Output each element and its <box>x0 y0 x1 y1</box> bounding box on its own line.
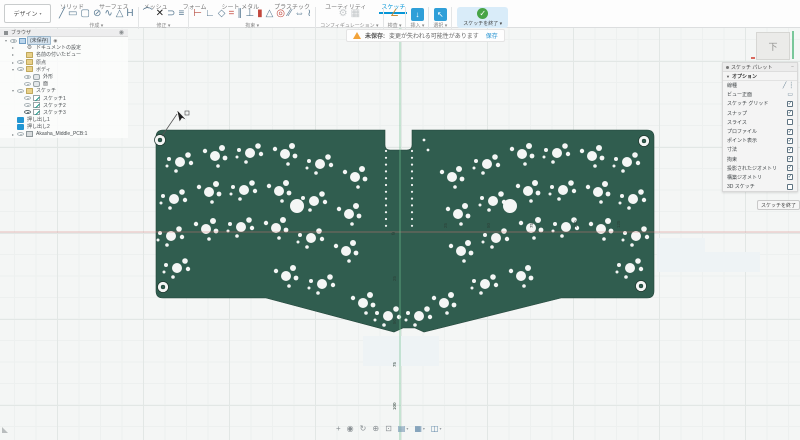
sketch-icon <box>33 102 40 108</box>
key-hole <box>490 245 494 249</box>
tree-item-label: 名前の付いたビュー <box>34 51 83 58</box>
offset-icon[interactable]: ≡ <box>178 7 184 21</box>
key-hole <box>166 165 169 168</box>
key-hole <box>175 157 185 167</box>
palette-row-ポイント表示: ポイント表示✓ <box>723 136 797 145</box>
key-hole <box>616 271 619 274</box>
key-hole <box>238 197 242 201</box>
key-hole <box>203 149 207 153</box>
key-hole <box>440 170 444 174</box>
key-hole <box>371 303 376 308</box>
body-icon <box>33 81 40 87</box>
via-hole <box>385 225 387 227</box>
palette-row-label: スナップ <box>727 110 787 117</box>
via-hole <box>411 184 413 186</box>
tree-item-label: スケッチ <box>34 87 58 94</box>
checkbox-スケッチ グリッド[interactable]: ✓ <box>787 101 793 107</box>
key-hole <box>446 207 450 211</box>
key-hole <box>341 246 351 256</box>
expand-arrow-icon[interactable]: ▾ <box>10 88 16 93</box>
via-hole <box>411 150 413 152</box>
key-hole <box>293 154 298 159</box>
via-hole <box>411 211 413 213</box>
key-hole <box>197 185 201 189</box>
save-link[interactable]: 保存 <box>486 31 498 40</box>
tree-row-外形[interactable]: 外形 <box>0 73 128 80</box>
key-hole <box>274 186 284 196</box>
key-hole <box>456 166 462 172</box>
key-hole <box>482 241 485 244</box>
collapse-icon[interactable]: − <box>791 64 794 70</box>
key-hole <box>529 276 534 281</box>
tree-item-label: ボディ <box>34 66 53 73</box>
key-hole <box>621 169 625 173</box>
tree-row-スケッチ2[interactable]: スケッチ2 <box>0 102 128 109</box>
key-hole <box>281 271 291 281</box>
group-label-挿入[interactable]: 挿入 ▾ <box>410 22 424 29</box>
grid-coordinate-label: 50 <box>486 222 491 228</box>
key-hole <box>529 199 533 203</box>
key-hole <box>273 147 277 151</box>
grid-coordinate-label: 50 <box>392 318 397 324</box>
gear-icon: ⚙ <box>26 45 33 51</box>
key-hole <box>161 194 165 198</box>
extrude-icon <box>17 124 24 130</box>
visibility-eye-icon[interactable] <box>17 60 24 64</box>
key-hole <box>448 292 454 298</box>
large-hole <box>503 199 517 213</box>
tree-row-ボディ[interactable]: ▾ボディ <box>0 66 128 73</box>
key-hole <box>480 279 490 289</box>
configure-icon[interactable]: ⚙ <box>339 7 348 21</box>
screw-hole-center <box>161 285 165 289</box>
construction-line-icon[interactable]: ╱ <box>783 82 787 89</box>
perpendicular-icon[interactable]: ⊥ <box>245 7 254 21</box>
group-label-コンフィギュレーション[interactable]: コンフィギュレーション ▾ <box>320 22 378 29</box>
key-hole <box>271 223 281 233</box>
palette-options-section[interactable]: ▼ オプション <box>723 72 797 81</box>
via-hole <box>411 218 413 220</box>
palette-row-スケッチ グリッド: スケッチ グリッド✓ <box>723 99 797 108</box>
key-hole <box>236 222 246 232</box>
look-at-icon[interactable]: ▭ <box>787 91 793 98</box>
key-hole <box>488 196 498 206</box>
key-hole <box>641 226 647 232</box>
key-hole <box>614 157 618 161</box>
finish-sketch-button[interactable]: スケッチを終了 <box>757 200 800 210</box>
via-hole <box>411 204 413 206</box>
tree-row-スケッチ[interactable]: ▾スケッチ <box>0 87 128 94</box>
viewcube-y-axis <box>792 31 794 59</box>
chevron-down-icon: ▾ <box>439 426 441 431</box>
key-hole <box>183 198 187 202</box>
curvature-icon[interactable]: ≀ <box>307 7 311 21</box>
via-hole <box>427 149 430 152</box>
tree-row-スケッチ1[interactable]: スケッチ1 <box>0 95 128 102</box>
key-hole <box>316 291 320 295</box>
palette-row-label: 構築ジオメトリ <box>727 174 787 181</box>
tree-row-押し出し2[interactable]: 押し出し2 <box>0 123 128 130</box>
tree-row-ドキュメントの設定[interactable]: ▸⚙ドキュメントの設定 <box>0 44 128 51</box>
display-settings-icon[interactable]: ▤▾ <box>398 424 409 433</box>
key-hole <box>620 194 624 198</box>
visibility-eye-icon[interactable] <box>24 103 31 107</box>
fusion360-window: デザイン ▾ ソリッドサーフェスメッシュフォームシート メタルプラスチックユーテ… <box>0 0 800 440</box>
key-hole <box>367 292 373 298</box>
panel-collapse-handle[interactable] <box>2 427 8 433</box>
key-hole <box>522 284 526 288</box>
measure-icon[interactable]: ∠ <box>390 7 399 21</box>
slot-icon[interactable]: ▢ <box>80 7 89 21</box>
key-hole <box>474 159 478 163</box>
visibility-eye-icon[interactable] <box>10 39 17 43</box>
key-hole <box>636 161 640 165</box>
rectangle-icon[interactable]: ▭ <box>68 7 77 21</box>
palette-title: スケッチ パレット <box>731 64 772 71</box>
key-hole <box>350 222 354 226</box>
key-hole <box>343 170 347 174</box>
grid-coordinate-label: 125 <box>616 220 621 228</box>
key-hole <box>253 189 257 193</box>
tree-row-スケッチ3[interactable]: スケッチ3 <box>0 109 128 116</box>
key-hole <box>549 193 552 196</box>
key-hole <box>246 217 252 223</box>
visibility-eye-icon[interactable] <box>24 75 31 79</box>
select-icon[interactable]: ↖ <box>434 8 447 21</box>
extend-icon[interactable]: ⊃ <box>167 7 175 21</box>
key-hole <box>466 214 471 219</box>
sketch-icon <box>33 109 40 115</box>
key-hole <box>523 186 533 196</box>
large-hole <box>290 199 304 213</box>
spline-icon[interactable]: ∿ <box>104 7 112 21</box>
key-hole <box>305 245 309 249</box>
trim-icon[interactable]: ✕ <box>156 7 164 21</box>
warning-prefix: 未保存: <box>365 31 385 40</box>
key-hole <box>586 185 590 189</box>
via-hole <box>385 211 387 213</box>
visibility-eye-icon[interactable] <box>17 67 24 71</box>
key-hole <box>587 151 597 161</box>
checkbox-拘束[interactable]: ✓ <box>787 156 793 162</box>
key-hole <box>496 163 500 167</box>
key-hole <box>558 185 568 195</box>
centerline-icon[interactable]: ┆ <box>789 82 793 89</box>
key-hole <box>639 267 643 271</box>
key-hole <box>473 167 476 170</box>
collinear-icon[interactable]: ∕∕ <box>288 7 291 21</box>
key-hole <box>530 154 535 159</box>
checkbox-3D スケッチ[interactable] <box>787 184 793 190</box>
palette-grip-icon <box>726 66 729 69</box>
browser-panel: ブラウザ ◉ ▾(未保存)◉▸⚙ドキュメントの設定▸名前の付いたビュー▸原点▾ボ… <box>0 29 128 138</box>
group-label-検査[interactable]: 検査 ▾ <box>388 22 402 29</box>
sketch-dimension-icon[interactable]: ⊢ <box>193 7 202 21</box>
palette-row-label: ビュー正面 <box>727 91 784 98</box>
palette-row-ビュー正面: ビュー正面▭ <box>723 90 797 99</box>
key-hole <box>171 275 175 279</box>
key-hole <box>526 143 532 149</box>
tree-row-(未保存)[interactable]: ▾(未保存)◉ <box>0 37 128 44</box>
origin-symbol[interactable]: ⌀ <box>391 231 395 237</box>
key-hole <box>316 228 322 234</box>
config-table-icon[interactable]: ▦ <box>351 7 360 21</box>
key-hole <box>382 323 386 327</box>
workspace-switcher[interactable]: デザイン ▾ <box>4 4 51 23</box>
key-hole <box>557 197 561 201</box>
key-hole <box>331 283 335 287</box>
key-hole <box>593 164 597 168</box>
key-hole <box>309 279 313 283</box>
equal-icon[interactable]: = <box>229 7 235 21</box>
text-icon[interactable]: H <box>126 7 133 21</box>
orbit-icon[interactable]: ↻ <box>360 424 367 433</box>
key-hole <box>230 193 233 196</box>
key-hole <box>264 221 268 225</box>
key-hole <box>353 203 359 209</box>
screw-hole-center <box>639 284 643 288</box>
body-icon <box>33 74 40 80</box>
tree-row-面[interactable]: 面 <box>0 80 128 87</box>
line-icon[interactable]: ╱ <box>59 7 65 21</box>
key-hole <box>309 196 319 206</box>
group-label-修正[interactable]: 修正 ▾ <box>157 22 171 29</box>
key-hole <box>364 311 368 315</box>
key-hole <box>210 151 220 161</box>
key-hole <box>482 159 492 169</box>
key-hole <box>228 222 232 226</box>
collapse-arrow-icon[interactable]: ▸ <box>10 52 16 57</box>
chevron-down-icon: ▼ <box>726 74 730 79</box>
options-label: オプション <box>732 73 757 80</box>
palette-row-スライス: スライス <box>723 118 797 127</box>
key-hole <box>632 152 638 158</box>
key-hole <box>163 271 166 274</box>
collapse-arrow-icon[interactable]: ▸ <box>10 132 16 137</box>
expand-arrow-icon[interactable]: ▾ <box>10 67 16 72</box>
pan-icon[interactable]: + <box>336 424 341 433</box>
insert-icon[interactable]: ↓ <box>411 8 424 21</box>
key-hole <box>189 161 193 165</box>
active-component-radio[interactable]: ◉ <box>53 38 57 44</box>
grid-coordinate-label: 75 <box>529 222 534 228</box>
key-hole <box>462 203 468 209</box>
key-hole <box>517 149 527 159</box>
via-hole <box>385 164 387 166</box>
key-hole <box>481 171 485 175</box>
via-hole <box>385 191 387 193</box>
checkbox-スライス[interactable] <box>787 119 793 125</box>
key-hole <box>236 156 239 159</box>
key-hole <box>551 160 555 164</box>
fit-icon[interactable]: ⊡ <box>385 424 392 433</box>
key-hole <box>344 209 354 219</box>
zoom-icon[interactable]: ⊕ <box>372 424 379 433</box>
key-hole <box>186 267 190 271</box>
key-hole <box>494 283 498 287</box>
palette-row-label: 寸法 <box>727 146 787 153</box>
look-at-icon[interactable]: ◉ <box>347 424 354 433</box>
key-hole <box>157 239 160 242</box>
tree-item-label: Akasha_Middle_PCB:1 <box>34 131 89 137</box>
key-hole <box>289 143 295 149</box>
parallel-icon[interactable]: ∥ <box>237 7 242 21</box>
key-hole <box>280 217 286 223</box>
palette-row-label: スケッチ グリッド <box>727 100 787 107</box>
checkbox-寸法[interactable]: ✓ <box>787 147 793 153</box>
key-hole <box>535 217 541 223</box>
key-hole <box>453 209 463 219</box>
key-hole <box>168 206 172 210</box>
key-hole <box>280 149 290 159</box>
tree-row-原点[interactable]: ▸原点 <box>0 59 128 66</box>
grid-coordinate-label: 25 <box>443 222 448 228</box>
group-label-選択[interactable]: 選択 ▾ <box>433 22 447 29</box>
key-hole <box>605 218 611 224</box>
palette-row-label: 投影されたジオメトリ <box>727 165 787 172</box>
key-hole <box>290 265 296 271</box>
key-hole <box>624 275 628 279</box>
key-hole <box>306 167 309 170</box>
key-hole <box>308 287 311 290</box>
key-hole <box>631 231 641 241</box>
polygon-icon[interactable]: △ <box>116 7 124 21</box>
key-hole <box>210 218 216 224</box>
key-hole <box>158 231 162 235</box>
key-hole <box>237 148 241 152</box>
concentric-icon[interactable]: ◎ <box>276 7 285 21</box>
key-hole <box>219 145 225 151</box>
visibility-eye-icon[interactable] <box>24 96 31 100</box>
circle-icon[interactable]: ⊘ <box>93 7 101 21</box>
horizontal-vertical-icon[interactable]: ∟ <box>205 7 215 21</box>
key-hole <box>286 162 290 166</box>
tree-row-押し出し1[interactable]: 押し出し1 <box>0 116 128 123</box>
via-hole <box>423 139 426 142</box>
toolbar-group-選択: ↖選択 ▾ <box>430 7 450 29</box>
key-hole <box>210 200 214 204</box>
key-hole <box>445 311 449 315</box>
extrude-icon <box>17 117 24 123</box>
key-hole <box>602 181 608 187</box>
key-hole <box>456 246 466 256</box>
palette-row-3D スケッチ: 3D スケッチ <box>723 182 797 191</box>
tree-row-名前の付いたビュー[interactable]: ▸名前の付いたビュー <box>0 51 128 58</box>
grid-coordinate-label: 25 <box>392 275 397 281</box>
pcb-board-outline[interactable] <box>156 130 654 332</box>
key-hole <box>245 148 255 158</box>
screw-hole-center <box>642 139 646 143</box>
key-hole <box>255 143 261 149</box>
key-hole <box>283 180 289 186</box>
chevron-down-icon: ▾ <box>406 426 408 431</box>
tree-item-label: 押し出し2 <box>25 123 52 130</box>
midpoint-icon[interactable]: △ <box>266 7 274 21</box>
key-hole <box>566 152 570 156</box>
palette-header[interactable]: スケッチ パレット − <box>723 63 797 72</box>
key-hole <box>307 159 311 163</box>
browser-header: ブラウザ ◉ <box>0 29 128 37</box>
key-hole <box>315 159 325 169</box>
tree-row-Akasha_Middle_PCB:1[interactable]: ▸Akasha_Middle_PCB:1 <box>0 130 128 137</box>
group-label-拘束[interactable]: 拘束 ▾ <box>245 22 259 29</box>
visibility-eye-icon[interactable] <box>24 110 31 114</box>
key-hole <box>645 235 649 239</box>
palette-row-label: プロファイル <box>727 128 787 135</box>
key-hole <box>432 296 436 300</box>
grid-snap-icon[interactable]: ▦▾ <box>414 424 425 433</box>
checkbox-構築ジオメトリ[interactable]: ✓ <box>787 174 793 180</box>
key-hole <box>319 191 325 197</box>
visibility-eye-icon[interactable] <box>17 89 24 93</box>
key-hole <box>469 251 474 256</box>
checkbox-プロファイル[interactable]: ✓ <box>787 129 793 135</box>
browser-gear-icon[interactable]: ◉ <box>119 29 124 36</box>
key-hole <box>414 311 424 321</box>
key-hole <box>294 276 299 281</box>
fillet-icon[interactable]: ⌒ <box>143 7 153 21</box>
highlight-region <box>363 336 439 366</box>
key-hole <box>483 233 487 237</box>
checkbox-ポイント表示[interactable]: ✓ <box>787 138 793 144</box>
key-hole <box>180 235 184 239</box>
key-hole <box>298 233 302 237</box>
collapse-arrow-icon[interactable]: ▸ <box>10 60 16 65</box>
checkbox-スナップ[interactable]: ✓ <box>787 110 793 116</box>
key-hole <box>374 319 377 322</box>
collapse-arrow-icon[interactable]: ▸ <box>10 45 16 50</box>
key-hole <box>350 172 360 182</box>
via-hole <box>385 150 387 152</box>
expand-arrow-icon[interactable]: ▾ <box>3 38 9 43</box>
group-label-作成[interactable]: 作成 ▾ <box>89 22 103 29</box>
key-hole <box>306 233 316 243</box>
key-hole <box>351 296 355 300</box>
group-divider <box>451 7 452 29</box>
viewports-icon[interactable]: ◫▾ <box>431 424 442 433</box>
highlight-region <box>657 238 705 272</box>
viewcube[interactable]: 下 <box>756 32 790 60</box>
sketch-icon <box>33 95 40 101</box>
fix-icon[interactable]: ▮ <box>257 7 263 21</box>
finish-sketch-chip[interactable]: ✓スケッチを終了 ▾ <box>457 7 508 28</box>
key-hole <box>532 180 538 186</box>
key-hole <box>347 259 351 263</box>
key-hole <box>553 222 557 226</box>
checkbox-投影されたジオメトリ[interactable]: ✓ <box>787 165 793 171</box>
tree-item-label: 原点 <box>34 59 48 66</box>
sketch-palette: スケッチ パレット − ▼ オプション 線種╱┆ビュー正面▭スケッチ グリッド✓… <box>722 62 798 192</box>
workspace-label: デザイン <box>13 9 37 18</box>
key-hole <box>405 319 408 322</box>
grid-coordinate-label: 100 <box>573 220 578 228</box>
key-hole <box>185 152 191 158</box>
visibility-eye-icon[interactable] <box>24 82 31 86</box>
visibility-eye-icon[interactable] <box>17 132 24 136</box>
unsaved-warning-bar: 未保存: 変更が失われる可能性があります 保存 <box>346 29 505 42</box>
screw-hole-center <box>158 138 162 142</box>
key-hole <box>606 192 611 197</box>
palette-row-投影されたジオメトリ: 投影されたジオメトリ✓ <box>723 164 797 173</box>
folder-icon <box>26 88 33 94</box>
coincident-icon[interactable]: ◇ <box>218 7 226 21</box>
warning-message: 変更が失われる可能性があります <box>389 31 479 40</box>
palette-row-label: ポイント表示 <box>727 137 787 144</box>
key-hole <box>277 236 281 240</box>
navigation-bar: +◉↻⊕⊡▤▾▦▾◫▾ <box>336 424 442 433</box>
symmetry-icon[interactable]: ⇔ <box>294 7 304 21</box>
key-hole <box>544 148 548 152</box>
